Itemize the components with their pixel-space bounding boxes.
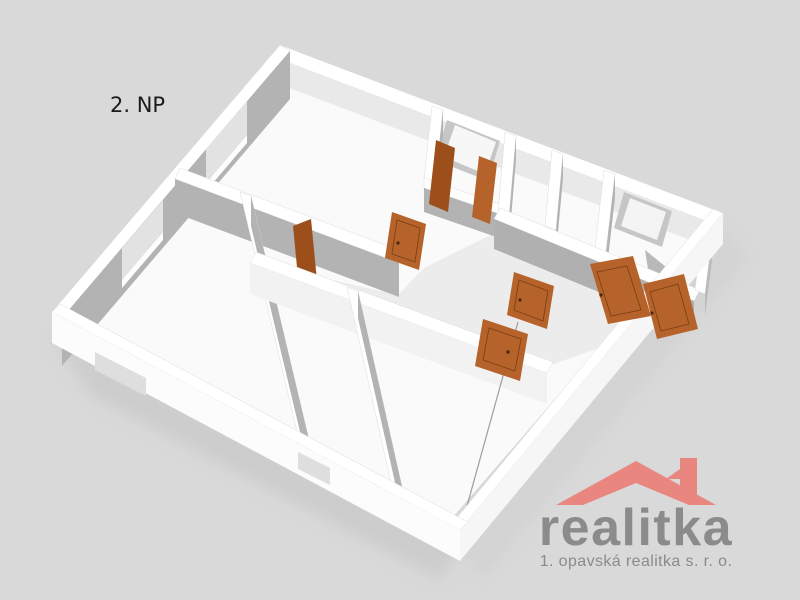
door-handle [518,298,521,301]
logo-name: realitka [539,499,733,557]
door-handle [599,293,602,296]
logo-tagline: 1. opavská realitka s. r. o. [540,553,733,570]
door-handle [506,350,509,353]
floor-plan-canvas: 2. NP realitka 1. opavská realitka s. r.… [0,0,800,600]
floor-label: 2. NP [110,93,165,117]
door-handle [650,311,653,314]
door-handle [396,241,399,244]
screenshot-root: 2. NP realitka 1. opavská realitka s. r.… [0,0,800,600]
